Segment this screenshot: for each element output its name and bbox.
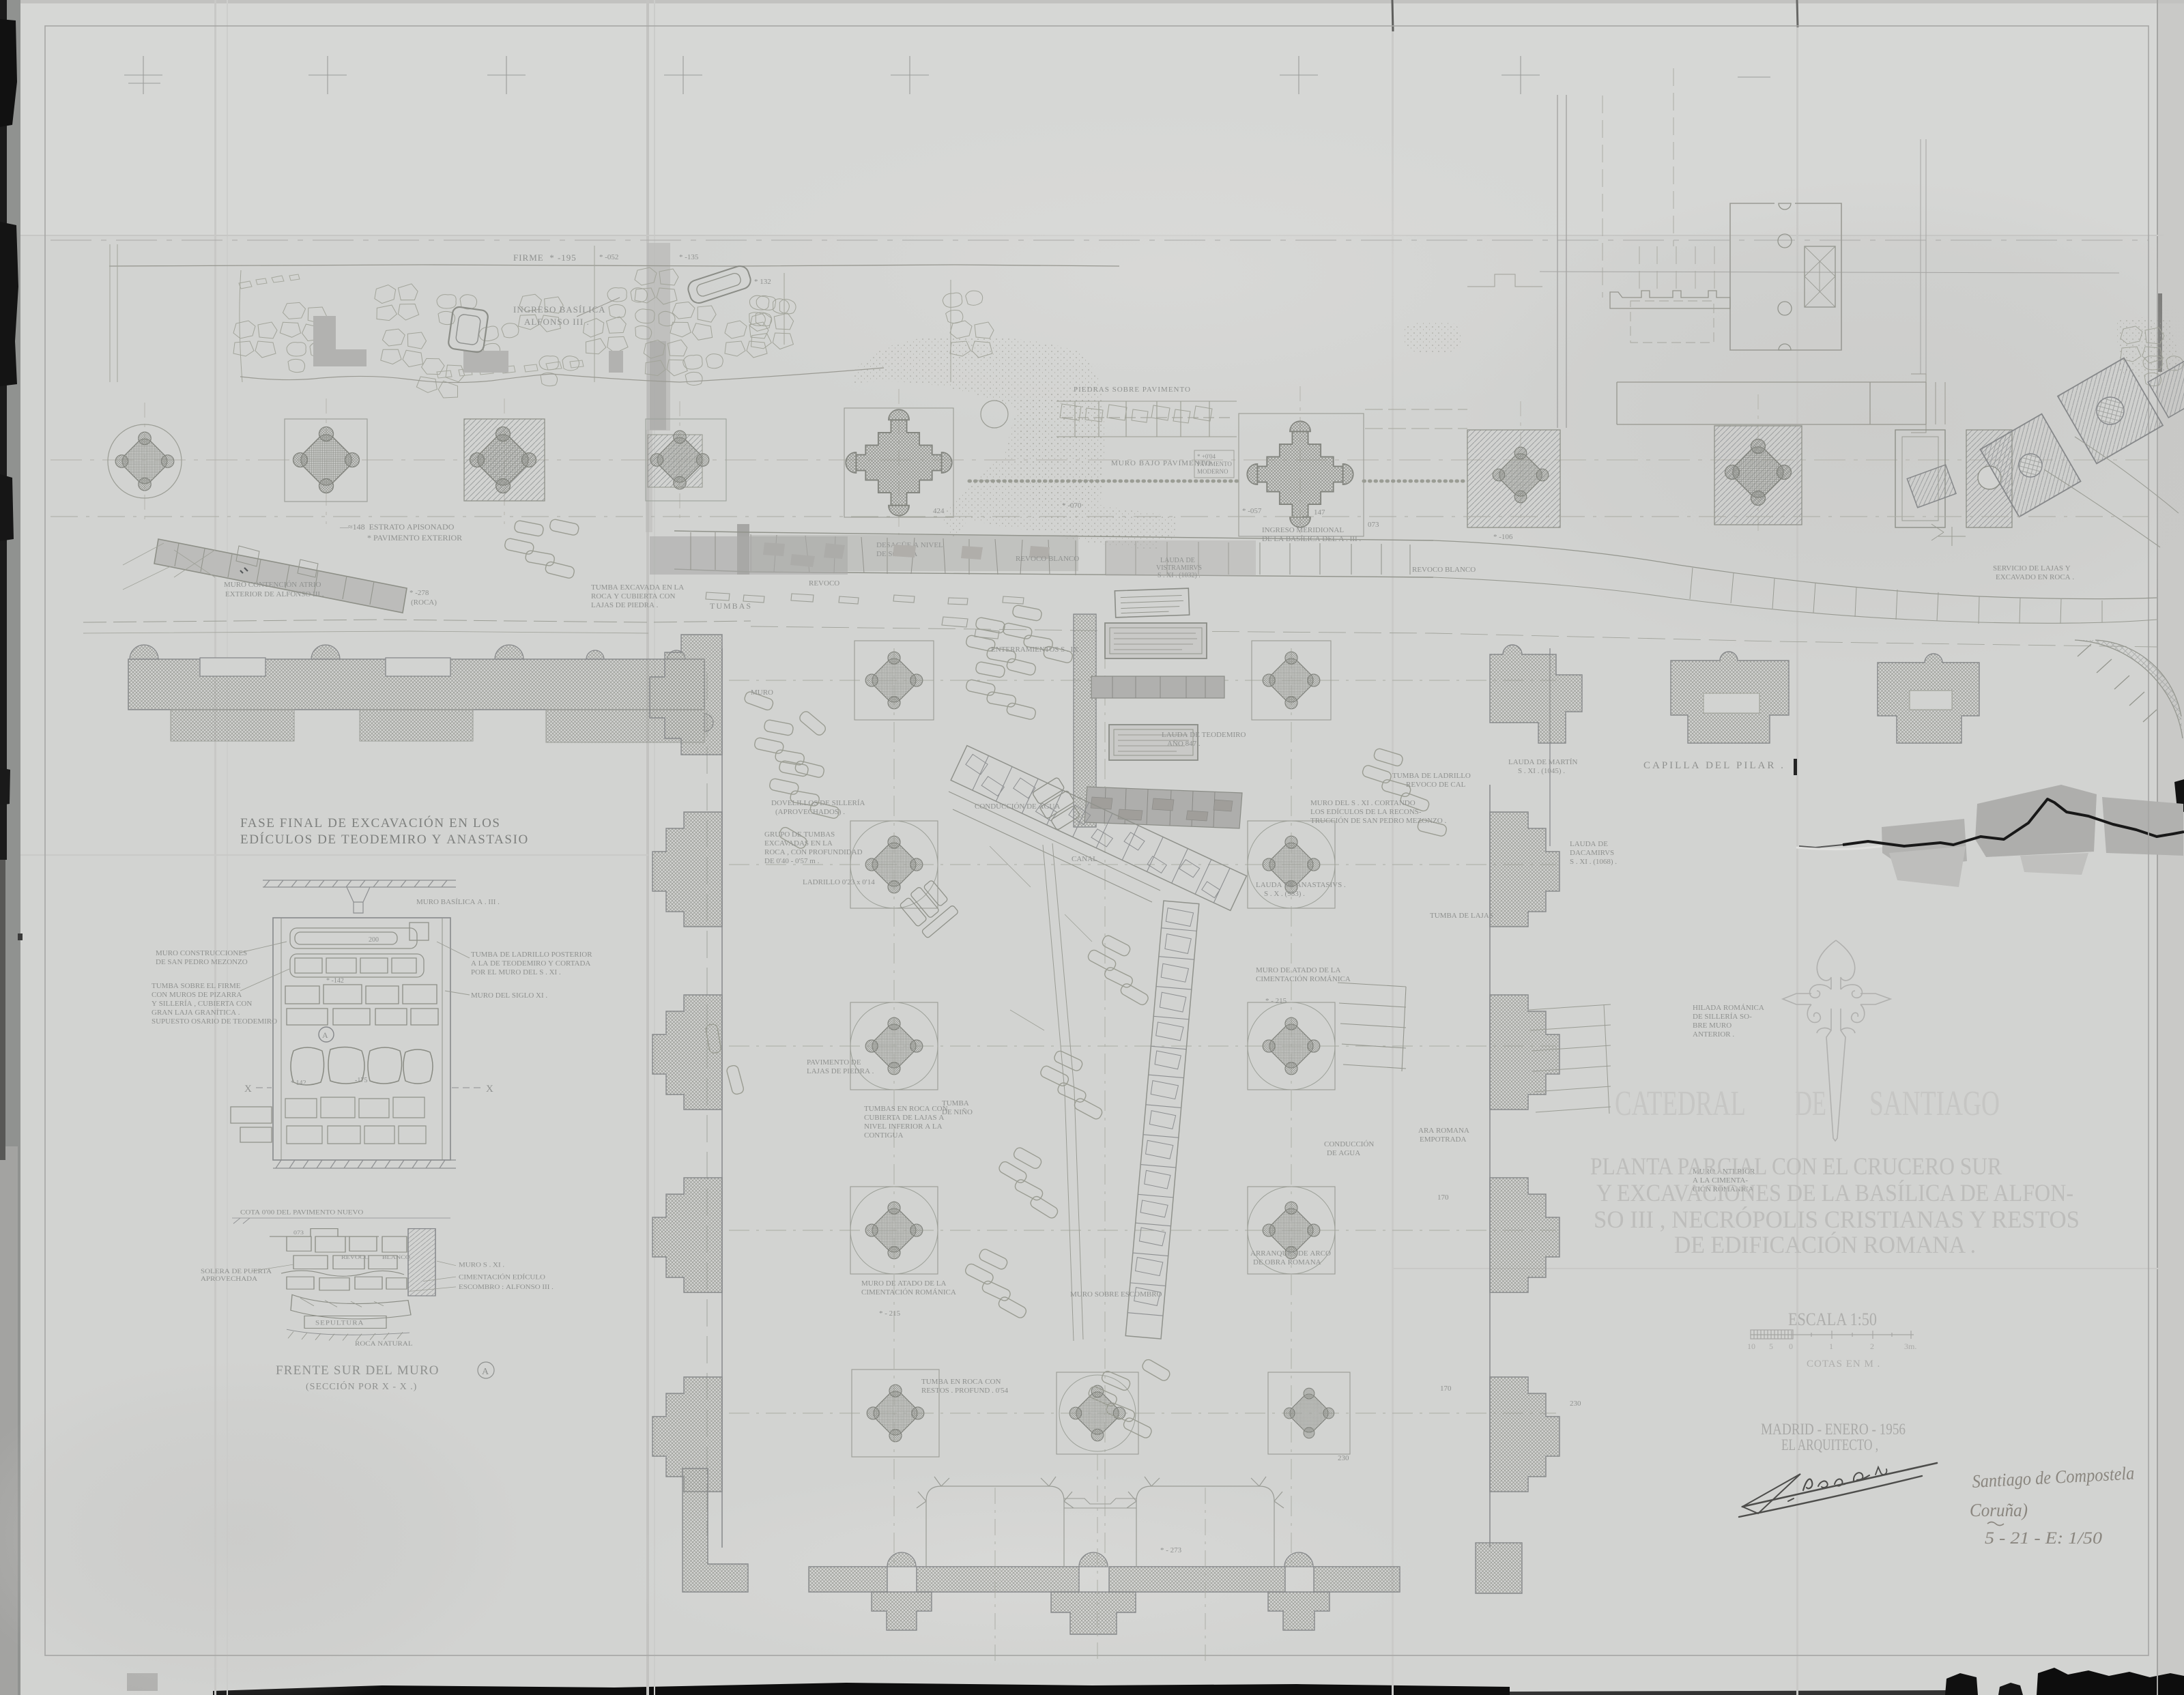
svg-text:-175: -175	[355, 1077, 367, 1084]
svg-text:LAJAS DE PIEDRA .: LAJAS DE PIEDRA .	[807, 1067, 874, 1075]
svg-text:A LA DE TEODEMIRO Y CORTADA: A LA DE TEODEMIRO Y CORTADA	[471, 959, 590, 968]
svg-text:ROCA NATURAL: ROCA NATURAL	[355, 1341, 413, 1348]
svg-text:CONTIGUA: CONTIGUA	[864, 1131, 903, 1140]
svg-text:APROVECHADA: APROVECHADA	[201, 1276, 258, 1283]
svg-text:HILADA ROMÁNICA: HILADA ROMÁNICA	[1693, 1004, 1764, 1012]
svg-text:EL ARQUITECTO ,: EL ARQUITECTO ,	[1781, 1436, 1878, 1453]
svg-text:CAPILLA DEL PILAR .: CAPILLA DEL PILAR .	[1643, 760, 1785, 771]
svg-text:* 132: * 132	[754, 278, 771, 286]
svg-text:Coruña): Coruña)	[1970, 1500, 2028, 1520]
svg-text:CONDUCCIÓN DE AGUA: CONDUCCIÓN DE AGUA	[975, 802, 1060, 811]
svg-text:DE AGUA: DE AGUA	[1327, 1149, 1360, 1157]
svg-text:EMPOTRADA: EMPOTRADA	[1420, 1135, 1467, 1144]
svg-text:(APROVECHADOS) .: (APROVECHADOS) .	[775, 808, 845, 816]
svg-text:MADRID - ENERO - 1956: MADRID - ENERO - 1956	[1761, 1421, 1906, 1438]
svg-text:SO III , NECRÓPOLIS CRISTIANAS: SO III , NECRÓPOLIS CRISTIANAS Y RESTOS	[1594, 1206, 2080, 1233]
svg-text:DE SILLERÍA SO-: DE SILLERÍA SO-	[1693, 1013, 1752, 1021]
svg-text:MURO CONSTRUCCIONES: MURO CONSTRUCCIONES	[156, 949, 247, 957]
svg-text:NIVEL INFERIOR A LA: NIVEL INFERIOR A LA	[864, 1122, 943, 1131]
svg-text:* +0'04: * +0'04	[1197, 453, 1216, 460]
svg-text:MODERNO: MODERNO	[1197, 468, 1228, 475]
svg-text:POR EL MURO DEL S . XI .: POR EL MURO DEL S . XI .	[471, 968, 561, 976]
svg-text:MURO BASÍLICA A . III .: MURO BASÍLICA A . III .	[416, 898, 500, 906]
svg-text:TRUCCIÓN DE SAN PEDRO MEZONZO: TRUCCIÓN DE SAN PEDRO MEZONZO .	[1310, 817, 1446, 825]
svg-text:X: X	[244, 1084, 252, 1095]
svg-text:DE LA BASÍLICA DEL A . III .: DE LA BASÍLICA DEL A . III .	[1262, 535, 1361, 543]
svg-text:* -142: * -142	[326, 977, 344, 985]
svg-text:FRENTE SUR DEL MURO: FRENTE SUR DEL MURO	[276, 1363, 444, 1378]
svg-text:5: 5	[1769, 1342, 1773, 1351]
svg-text:S . XI . (1068) .: S . XI . (1068) .	[1570, 858, 1617, 866]
svg-text:CATEDRAL: CATEDRAL	[1615, 1084, 1746, 1123]
svg-text:230: 230	[1570, 1400, 1581, 1408]
svg-text:MURO DE ATADO DE LA: MURO DE ATADO DE LA	[1256, 966, 1340, 974]
svg-text:MURO SOBRE ESCOMBRO: MURO SOBRE ESCOMBRO	[1070, 1290, 1162, 1299]
svg-text:MURO CONTENCIÓN ATRIO: MURO CONTENCIÓN ATRIO	[224, 581, 321, 589]
svg-text:DE NIÑO: DE NIÑO	[942, 1108, 973, 1116]
svg-text:PAVIMENTO: PAVIMENTO	[1197, 461, 1232, 467]
svg-text:ARA ROMANA: ARA ROMANA	[1418, 1127, 1469, 1135]
svg-text:1: 1	[1829, 1342, 1833, 1351]
svg-text:LOS EDÍCULOS DE LA RECONS-: LOS EDÍCULOS DE LA RECONS-	[1310, 808, 1422, 816]
svg-text:(SECCIÓN POR X - X .): (SECCIÓN POR X - X .)	[306, 1380, 417, 1392]
svg-text:* -057: * -057	[1242, 507, 1262, 515]
svg-text:* -070: * -070	[1062, 502, 1082, 510]
svg-text:SEPULTURA: SEPULTURA	[315, 1320, 364, 1327]
svg-text:TUMBAS: TUMBAS	[710, 601, 752, 611]
svg-text:SANTIAGO: SANTIAGO	[1869, 1084, 2000, 1123]
svg-text:TUMBA DE LADRILLO: TUMBA DE LADRILLO	[1392, 772, 1471, 780]
svg-text:GRAN LAJA GRANÍTICA .: GRAN LAJA GRANÍTICA .	[152, 1009, 240, 1017]
svg-text:PIEDRAS SOBRE PAVIMENTO: PIEDRAS SOBRE PAVIMENTO	[1074, 386, 1191, 394]
svg-text:EXTERIOR DE ALFONSO III .: EXTERIOR DE ALFONSO III .	[225, 590, 324, 598]
svg-text:MURO DE ATADO DE LA: MURO DE ATADO DE LA	[861, 1279, 946, 1288]
svg-text:424: 424	[933, 507, 945, 515]
svg-text:230: 230	[1338, 1454, 1349, 1462]
svg-text:* -135: * -135	[679, 253, 699, 261]
svg-text:REVOCO: REVOCO	[341, 1254, 369, 1260]
svg-text:CIMENTACIÓN EDÍCULO: CIMENTACIÓN EDÍCULO	[459, 1273, 545, 1281]
svg-text:DE: DE	[1795, 1084, 1826, 1123]
svg-text:GRUPO DE TUMBAS: GRUPO DE TUMBAS	[764, 830, 835, 839]
svg-text:CUBIERTA DE LAJAS A: CUBIERTA DE LAJAS A	[864, 1114, 944, 1122]
svg-text:S . X . (983) .: S . X . (983) .	[1264, 890, 1305, 898]
svg-text:* -052: * -052	[599, 253, 618, 261]
svg-text:PLANTA PARCIAL CON EL CRUCERO: PLANTA PARCIAL CON EL CRUCERO SUR	[1590, 1153, 2002, 1180]
svg-text:10: 10	[1747, 1342, 1755, 1351]
svg-text:S . XI . (1045) .: S . XI . (1045) .	[1518, 767, 1565, 775]
svg-text:* PAVIMENTO EXTERIOR: * PAVIMENTO EXTERIOR	[367, 533, 462, 542]
svg-text:—≈148 ESTRATO APISONADO: —≈148 ESTRATO APISONADO	[339, 522, 455, 532]
svg-text:ALFONSO III .: ALFONSO III .	[524, 317, 590, 327]
svg-text:EXCAVADO EN ROCA .: EXCAVADO EN ROCA .	[1996, 573, 2074, 581]
svg-text:REVOCO BLANCO: REVOCO BLANCO	[1016, 555, 1079, 563]
svg-text:A: A	[322, 1030, 328, 1040]
svg-text:COTAS EN M .: COTAS EN M .	[1807, 1359, 1880, 1370]
svg-text:BRE MURO: BRE MURO	[1693, 1022, 1732, 1030]
svg-text:* - 215: * - 215	[1265, 997, 1287, 1005]
svg-text:CIMENTACIÓN ROMÁNICA: CIMENTACIÓN ROMÁNICA	[861, 1288, 956, 1296]
svg-text:ESCALA 1:50: ESCALA 1:50	[1788, 1309, 1877, 1329]
svg-text:2: 2	[1870, 1342, 1874, 1351]
svg-text:DE 0'40 - 0'57 m .: DE 0'40 - 0'57 m .	[764, 857, 820, 865]
svg-text:DE OBRA ROMANA: DE OBRA ROMANA	[1253, 1258, 1321, 1266]
svg-text:MURO DEL SIGLO XI .: MURO DEL SIGLO XI .	[471, 991, 547, 1000]
svg-text:FASE FINAL DE EXCAVACIÓN EN LO: FASE FINAL DE EXCAVACIÓN EN LOS	[240, 815, 501, 830]
svg-text:ROCA Y CUBIERTA CON: ROCA Y CUBIERTA CON	[591, 592, 675, 600]
svg-text:LAJAS DE PIEDRA .: LAJAS DE PIEDRA .	[591, 601, 659, 609]
svg-text:COTA 0'00 DEL PAVIMENTO NUEVO: COTA 0'00 DEL PAVIMENTO NUEVO	[240, 1209, 363, 1216]
svg-text:0: 0	[1789, 1342, 1793, 1351]
svg-text:TUMBAS EN ROCA CON: TUMBAS EN ROCA CON	[864, 1105, 948, 1113]
svg-text:TUMBA EXCAVADA EN LA: TUMBA EXCAVADA EN LA	[591, 583, 684, 592]
svg-text:DOVELILLOS DE SILLERÍA: DOVELILLOS DE SILLERÍA	[771, 799, 865, 807]
svg-text:TUMBA: TUMBA	[942, 1099, 969, 1107]
svg-text:ENTERRAMIENTOS S . IX .: ENTERRAMIENTOS S . IX .	[991, 646, 1082, 654]
svg-text:ANTERIOR .: ANTERIOR .	[1693, 1030, 1734, 1039]
svg-text:EXCAVADAS EN LA: EXCAVADAS EN LA	[764, 839, 833, 847]
svg-text:X: X	[486, 1084, 493, 1095]
svg-text:S . XI . (1032) .: S . XI . (1032) .	[1158, 572, 1201, 579]
svg-text:147: 147	[1314, 508, 1325, 517]
svg-text:Y SILLERÍA , CUBIERTA CON: Y SILLERÍA , CUBIERTA CON	[152, 1000, 252, 1008]
svg-text:BLANCO: BLANCO	[382, 1254, 410, 1260]
svg-text:MURO DEL S . XI . CORTANDO: MURO DEL S . XI . CORTANDO	[1310, 799, 1416, 807]
svg-text:CON MUROS DE PIZARRA: CON MUROS DE PIZARRA	[152, 991, 242, 999]
svg-text:SUPUESTO OSARIO DE TEODEMIRO: SUPUESTO OSARIO DE TEODEMIRO	[152, 1017, 277, 1026]
svg-text:REVOCO DE CAL: REVOCO DE CAL	[1406, 781, 1466, 789]
svg-text:* -106: * -106	[1493, 533, 1513, 541]
svg-text:VISTRAMIRVS: VISTRAMIRVS	[1156, 564, 1202, 572]
svg-text:LAUDA DE TEODEMIRO: LAUDA DE TEODEMIRO	[1162, 731, 1246, 739]
svg-text:TUMBA EN ROCA CON: TUMBA EN ROCA CON	[921, 1378, 1001, 1386]
svg-text:TUMBA SOBRE EL FIRME: TUMBA SOBRE EL FIRME	[152, 982, 241, 990]
svg-text:* - 273: * - 273	[1160, 1546, 1182, 1554]
svg-text:ROCA , CON PROFUNDIDAD: ROCA , CON PROFUNDIDAD	[764, 848, 863, 856]
svg-text:INGRESO BASÍLICA: INGRESO BASÍLICA	[513, 304, 606, 315]
svg-text:AÑO 847 .: AÑO 847 .	[1167, 740, 1201, 748]
svg-text:LAUDA DE MARTÍN: LAUDA DE MARTÍN	[1508, 758, 1577, 766]
svg-text:LAUDA DE: LAUDA DE	[1570, 840, 1608, 848]
svg-text:TUMBA DE LADRILLO POSTERIOR: TUMBA DE LADRILLO POSTERIOR	[471, 951, 592, 959]
svg-text:ARRANQUES DE ARCO: ARRANQUES DE ARCO	[1250, 1249, 1331, 1258]
svg-text:DACAMIRVS: DACAMIRVS	[1570, 849, 1614, 857]
svg-text:200: 200	[369, 936, 379, 944]
svg-text:073: 073	[1368, 521, 1379, 529]
svg-text:MURO S . XI .: MURO S . XI .	[459, 1262, 504, 1269]
svg-text:LADRILLO 0'23 x 0'14: LADRILLO 0'23 x 0'14	[803, 878, 875, 886]
svg-text:5 - 21 - E: 1/50: 5 - 21 - E: 1/50	[1985, 1529, 2103, 1548]
svg-text:170: 170	[1437, 1193, 1449, 1202]
svg-text:SERVICIO DE LAJAS Y: SERVICIO DE LAJAS Y	[1993, 564, 2071, 573]
svg-text:EDÍCULOS DE TEODEMIRO Y ANASTA: EDÍCULOS DE TEODEMIRO Y ANASTASIO	[240, 832, 529, 847]
svg-text:CONDUCCIÓN: CONDUCCIÓN	[1324, 1140, 1374, 1148]
svg-text:Y EXCAVACIONES DE LA BASÍLICA: Y EXCAVACIONES DE LA BASÍLICA DE ALFON-	[1596, 1179, 2073, 1206]
svg-text:* -278: * -278	[409, 589, 429, 597]
svg-text:170: 170	[1440, 1385, 1452, 1393]
svg-text:A: A	[482, 1367, 489, 1377]
svg-text:ESCOMBRO : ALFONSO III .: ESCOMBRO : ALFONSO III .	[459, 1284, 554, 1291]
svg-text:073: 073	[293, 1230, 304, 1236]
svg-text:3m.: 3m.	[1904, 1342, 1916, 1351]
svg-text:(ROCA): (ROCA)	[411, 598, 437, 607]
svg-text:INGRESO MERIDIONAL: INGRESO MERIDIONAL	[1262, 526, 1344, 534]
svg-text:REVOCO: REVOCO	[809, 579, 839, 588]
svg-text:CANAL: CANAL	[1072, 855, 1097, 863]
svg-text:LAUDA DE ANASTASIVS .: LAUDA DE ANASTASIVS .	[1256, 881, 1346, 889]
svg-text:* - 215: * - 215	[879, 1309, 901, 1318]
svg-text:PAVIMENTO DE: PAVIMENTO DE	[807, 1058, 861, 1067]
svg-text:DE SAN PEDRO MEZONZO: DE SAN PEDRO MEZONZO	[156, 958, 248, 966]
svg-text:FIRME * -195: FIRME * -195	[513, 252, 577, 263]
svg-text:TUMBA DE LAJAS: TUMBA DE LAJAS	[1430, 912, 1493, 920]
svg-text:DE EDIFICACIÓN ROMANA .: DE EDIFICACIÓN ROMANA .	[1674, 1231, 1976, 1258]
svg-text:REVOCO BLANCO: REVOCO BLANCO	[1412, 566, 1476, 574]
svg-text:CIMENTACIÓN ROMÁNICA: CIMENTACIÓN ROMÁNICA	[1256, 975, 1351, 983]
svg-text:LAUDA DE: LAUDA DE	[1160, 557, 1195, 564]
svg-text:MURO: MURO	[751, 689, 773, 697]
svg-text:RESTOS . PROFUND . 0'54: RESTOS . PROFUND . 0'54	[921, 1387, 1009, 1395]
svg-text:* 142: * 142	[291, 1080, 306, 1087]
